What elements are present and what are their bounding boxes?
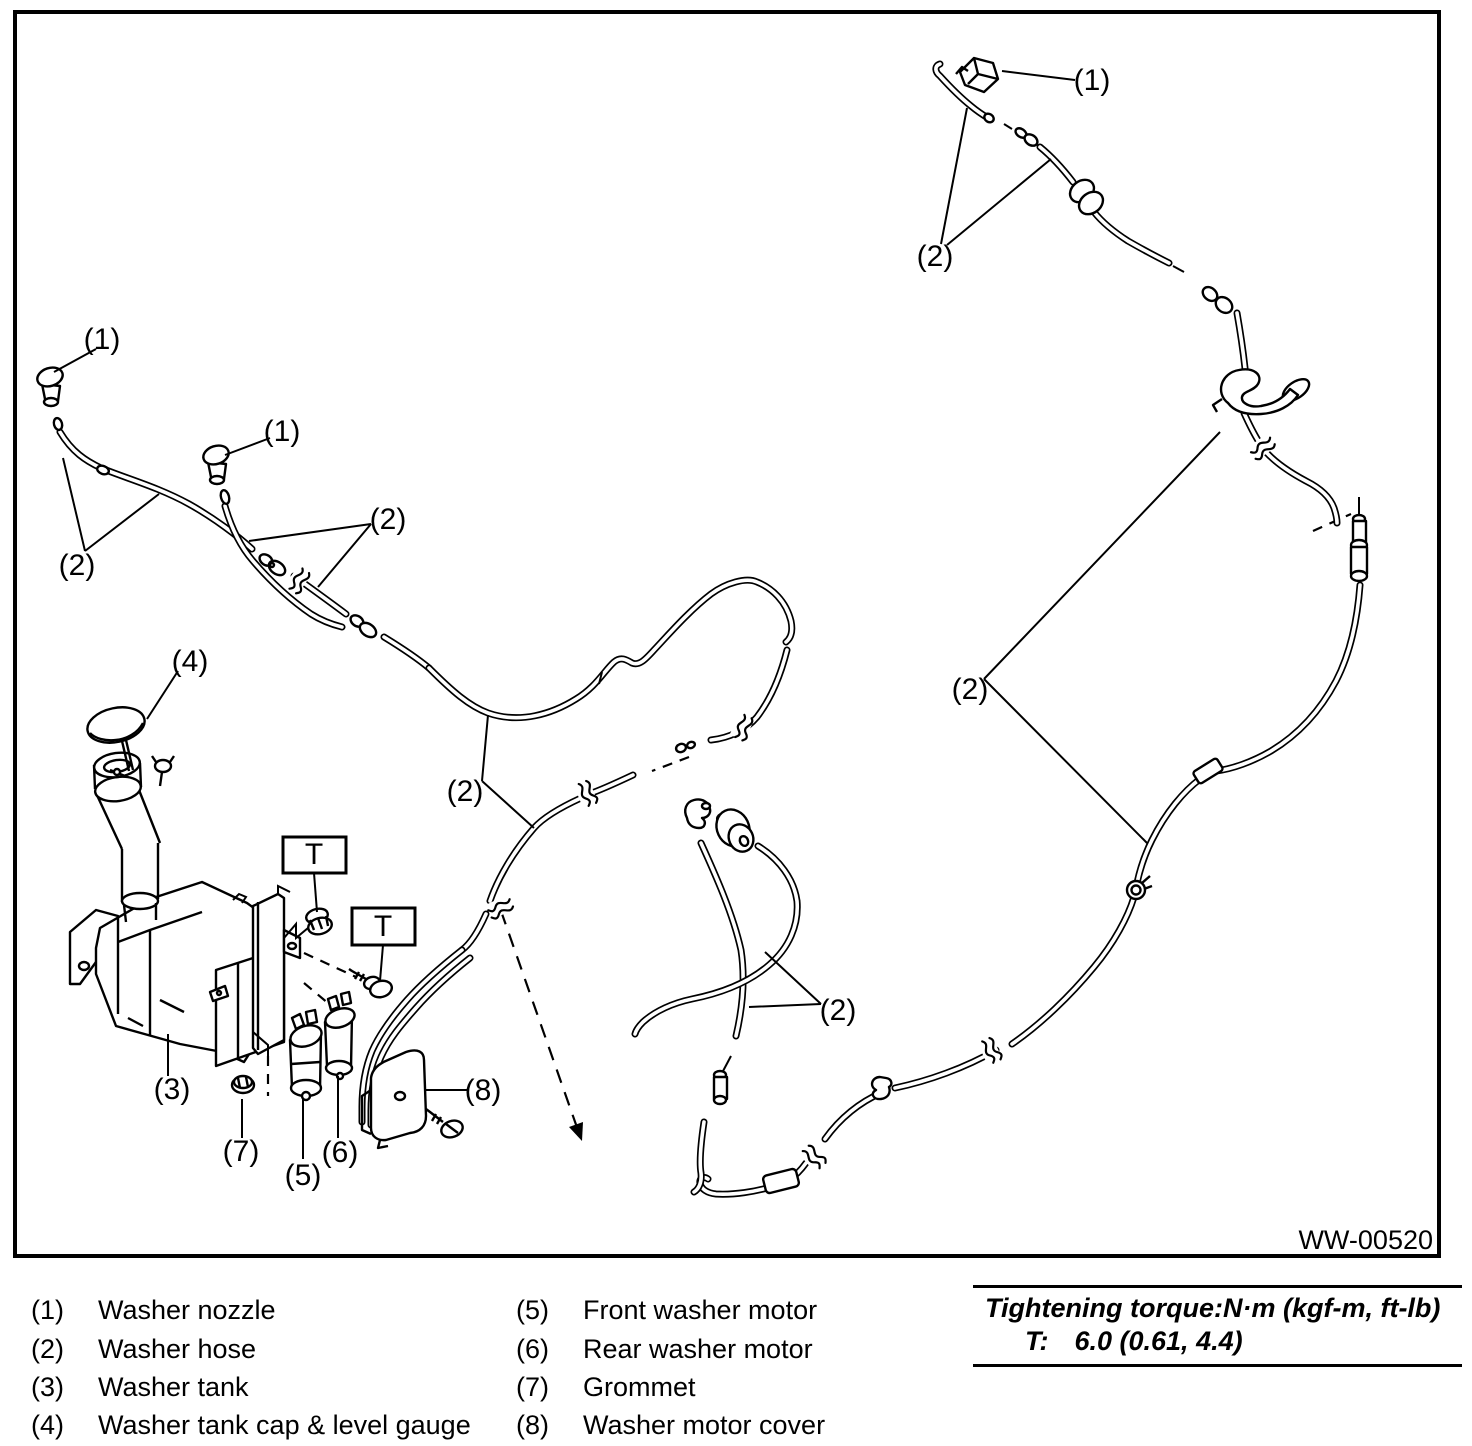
- legend-row-5: (5)Front washer motor: [516, 1295, 817, 1325]
- rear-hose-hardware: [762, 497, 1367, 1194]
- callout-front-washer-motor: (5): [285, 1161, 322, 1191]
- legend-row-1: (1)Washer nozzle: [31, 1295, 276, 1325]
- floor-grommet-group: [685, 799, 758, 1104]
- callout-rear-hose-right: (2): [952, 675, 989, 705]
- callout-washer-tank-cap: (4): [172, 647, 209, 677]
- callout-front-hose-left: (2): [59, 551, 96, 581]
- callout-washer-tank: (3): [154, 1075, 191, 1105]
- legend-label-6: Rear washer motor: [583, 1334, 813, 1364]
- hose-break-marks: [285, 434, 1277, 1173]
- legend-label-7: Grommet: [583, 1372, 696, 1402]
- callout-front-nozzle-left: (1): [84, 325, 121, 355]
- hose-s-hook-clip: [1213, 369, 1313, 414]
- legend-num-1: (1): [31, 1295, 98, 1325]
- callout-washer-motor-cover: (8): [465, 1076, 502, 1106]
- rear-washer-nozzle-drawing: [956, 58, 998, 92]
- legend-label-3: Washer tank: [98, 1372, 249, 1402]
- legend-row-2: (2)Washer hose: [31, 1334, 256, 1364]
- legend-row-7: (7)Grommet: [516, 1372, 696, 1402]
- legend-num-7: (7): [516, 1372, 583, 1402]
- legend-num-6: (6): [516, 1334, 583, 1364]
- torque-t2-label: T: [374, 912, 392, 942]
- callout-front-hose-center: (2): [447, 777, 484, 807]
- legend-num-4: (4): [31, 1410, 98, 1440]
- legend-label-1: Washer nozzle: [98, 1295, 276, 1325]
- legend-label-8: Washer motor cover: [583, 1410, 825, 1440]
- figure-code: WW-00520: [1233, 1226, 1433, 1254]
- washer-tank-drawing: [70, 702, 308, 1066]
- torque-t1-label: T: [305, 840, 323, 870]
- callout-front-nozzle-right: (1): [264, 417, 301, 447]
- torque-symbol: T:: [1025, 1326, 1048, 1357]
- callout-mid-washer-hose: (2): [820, 996, 857, 1026]
- callout-rear-washer-nozzle: (1): [1074, 66, 1111, 96]
- legend-label-4: Washer tank cap & level gauge: [98, 1410, 471, 1440]
- torque-title: Tightening torque:N·m (kgf-m, ft-lb): [985, 1293, 1462, 1324]
- legend-num-8: (8): [516, 1410, 583, 1440]
- callout-grommet: (7): [223, 1137, 260, 1167]
- legend-label-2: Washer hose: [98, 1334, 256, 1364]
- callout-rear-washer-motor: (6): [322, 1138, 359, 1168]
- dashed-guides: [268, 514, 1351, 1141]
- legend-num-3: (3): [31, 1372, 98, 1402]
- diagram-frame: [15, 12, 1439, 1256]
- legend-row-8: (8)Washer motor cover: [516, 1410, 825, 1440]
- legend-num-5: (5): [516, 1295, 583, 1325]
- legend-row-4: (4)Washer tank cap & level gauge: [31, 1410, 471, 1440]
- callout-rear-washer-hose-top: (2): [917, 242, 954, 272]
- legend-row-3: (3)Washer tank: [31, 1372, 249, 1402]
- torque-value: 6.0 (0.61, 4.4): [1074, 1326, 1242, 1357]
- legend-num-2: (2): [31, 1334, 98, 1364]
- tightening-torque-note: Tightening torque:N·m (kgf-m, ft-lb) T: …: [973, 1285, 1462, 1367]
- legend-label-5: Front washer motor: [583, 1295, 817, 1325]
- washer-system-diagram-page: (1) (2) (1) (1) (2) (2) (4) (2) (2) (2) …: [0, 0, 1472, 1446]
- legend-row-6: (6)Rear washer motor: [516, 1334, 813, 1364]
- callout-front-hose-mid: (2): [370, 505, 407, 535]
